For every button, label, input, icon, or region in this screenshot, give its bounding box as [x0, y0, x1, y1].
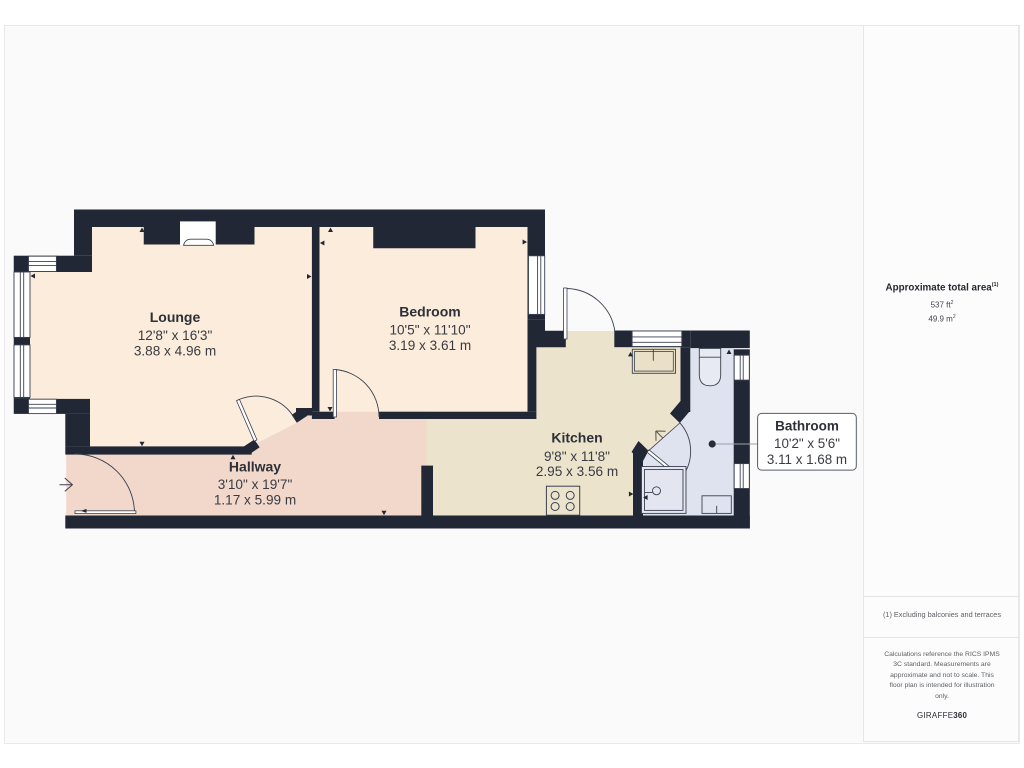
svg-text:12'8" x 16'3": 12'8" x 16'3": [138, 328, 213, 343]
svg-text:1.17 x 5.99 m: 1.17 x 5.99 m: [214, 493, 296, 508]
svg-text:Bedroom: Bedroom: [399, 304, 460, 320]
svg-text:3.11 x 1.68 m: 3.11 x 1.68 m: [767, 452, 847, 467]
svg-text:Kitchen: Kitchen: [551, 430, 602, 446]
svg-text:Lounge: Lounge: [150, 309, 201, 325]
svg-text:3.19 x 3.61 m: 3.19 x 3.61 m: [389, 338, 471, 353]
svg-text:3.88 x 4.96 m: 3.88 x 4.96 m: [134, 343, 216, 358]
svg-text:Bathroom: Bathroom: [775, 419, 839, 434]
svg-text:10'2" x 5'6": 10'2" x 5'6": [774, 436, 840, 451]
svg-text:10'5" x 11'10": 10'5" x 11'10": [389, 323, 470, 338]
svg-text:2.95 x 3.56 m: 2.95 x 3.56 m: [536, 464, 618, 479]
svg-text:9'8" x 11'8": 9'8" x 11'8": [544, 449, 610, 464]
svg-text:Hallway: Hallway: [229, 459, 281, 475]
svg-text:3'10" x 19'7": 3'10" x 19'7": [218, 477, 293, 492]
